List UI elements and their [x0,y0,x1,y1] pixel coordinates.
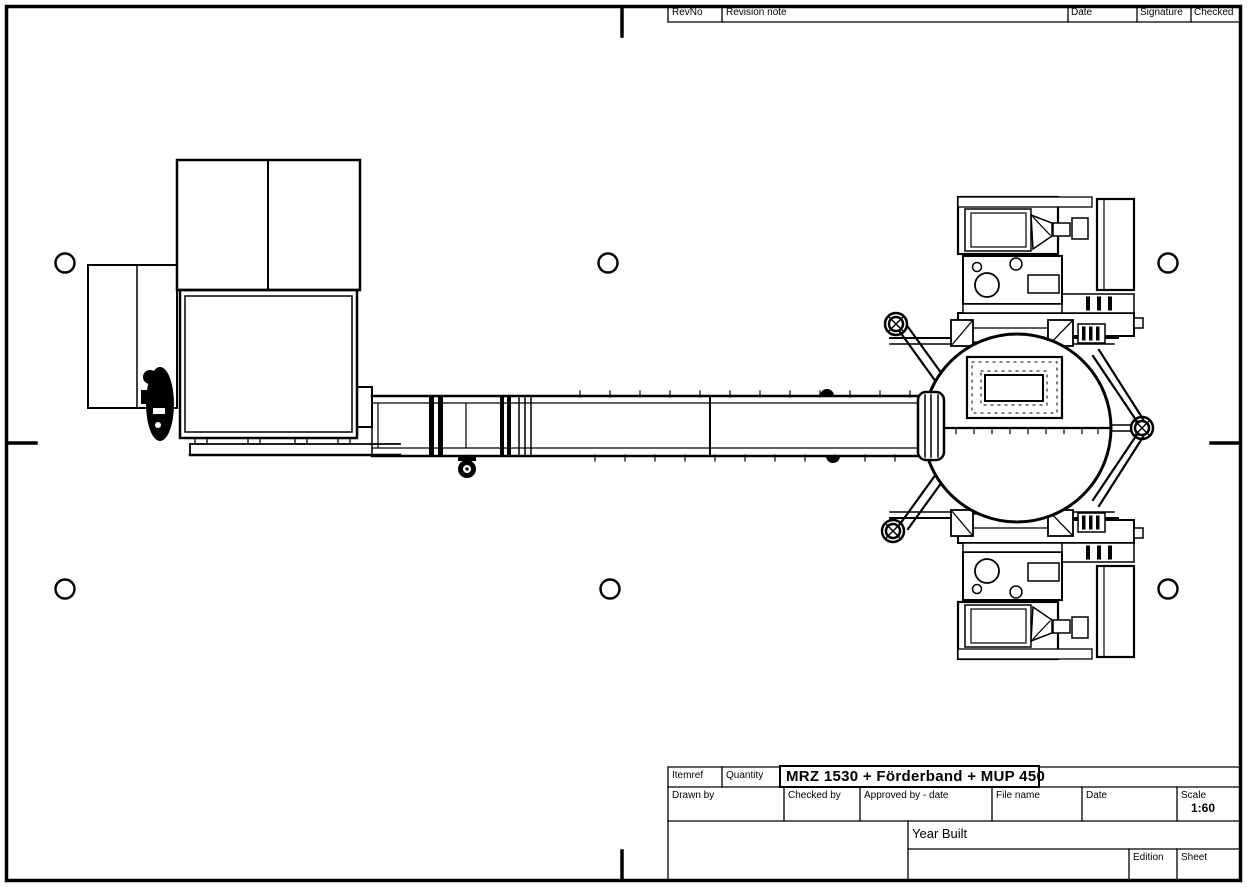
revision-col-checked: Checked [1194,7,1233,19]
support-foot-right [1131,417,1153,439]
revision-col-revno: RevNo [672,7,703,19]
screening-drum [923,334,1111,522]
belt-drive-motor [458,456,476,478]
approved-by-label: Approved by - date [864,790,949,802]
itemref-label: Itemref [672,770,703,782]
revision-col-signature: Signature [1140,7,1183,19]
date-label: Date [1086,790,1107,802]
revision-col-note: Revision note [726,7,787,19]
support-foot-bottom-left [882,520,904,542]
support-foot-top-left [885,313,907,335]
cad-drawing [0,0,1247,887]
scale-value: 1:60 [1182,801,1224,815]
year-built-label: Year Built [912,826,967,841]
roller-ticks [580,391,910,461]
conveyor-head-pulley [918,392,944,460]
shredder-unit [88,160,400,455]
revision-col-date: Date [1071,7,1092,19]
sheet-label: Sheet [1181,852,1207,864]
edition-label: Edition [1133,852,1164,864]
support-trailer-bottom [890,510,1143,659]
conveyor-belt [357,387,944,478]
drum-access-hatch [967,357,1062,418]
hydraulic-drive [141,367,174,441]
checked-by-label: Checked by [788,790,841,802]
base-skid [190,438,400,455]
file-name-label: File name [996,790,1040,802]
quantity-label: Quantity [726,770,763,782]
drawing-title: MRZ 1530 + Förderband + MUP 450 [779,765,1040,788]
drawn-by-label: Drawn by [672,790,714,802]
support-trailer-top [890,197,1143,346]
drawing-sheet: RevNo Revision note Date Signature Check… [0,0,1247,887]
